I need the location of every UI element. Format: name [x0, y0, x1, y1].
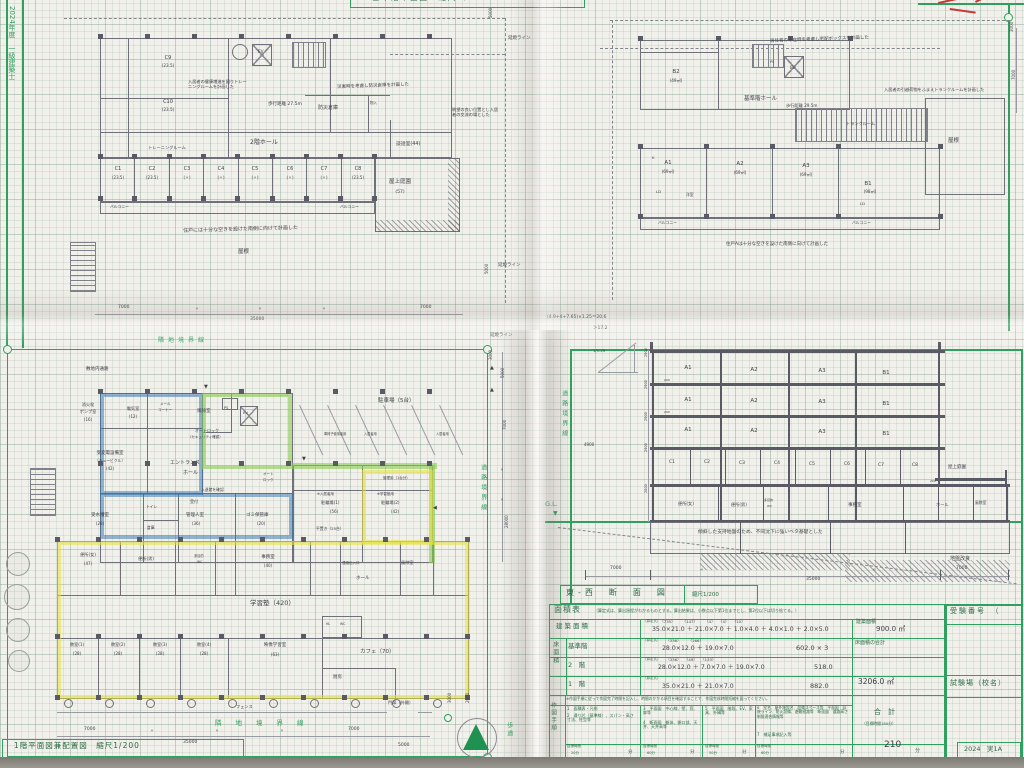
sec-dim-d2: 〃 — [872, 568, 876, 572]
unit-c3: C3 — [184, 167, 191, 173]
dim2f-d3: 〃 — [322, 307, 326, 311]
pencil-wall — [940, 570, 941, 580]
unit-a3-area: (69㎡) — [800, 173, 813, 178]
dim1f-d1: 〃 — [150, 729, 154, 733]
sec-wc-multi-2: WC — [767, 505, 772, 508]
plan1f-title-box-text: 1階平面図兼配置図 縮尺1/200 — [14, 742, 140, 750]
pencil-wall — [132, 154, 137, 159]
dim2f-35000: 35000 — [250, 317, 264, 322]
elec-room-area: (12) — [129, 415, 137, 419]
manager-room: 管理人室 — [186, 513, 204, 518]
pencil-wall — [424, 634, 429, 639]
note-walk-std: 歩行距離 29.5m — [786, 104, 817, 109]
red-handwriting-mark — [950, 8, 976, 14]
santei-4: （算定式） — [643, 677, 661, 681]
dim2f-d2: 〃 — [258, 307, 262, 311]
hall-std: 基準階ホール — [744, 96, 777, 102]
entrance-1: エントランス — [170, 461, 200, 467]
pencil-wall — [235, 154, 240, 159]
pencil-wall — [716, 36, 721, 41]
pencil-dimension-line — [634, 345, 635, 373]
unit-b1-area: (98㎡) — [864, 190, 877, 195]
pencil-wall — [838, 148, 839, 218]
pencil-wall — [650, 570, 651, 580]
sec-5f-a3: A3 — [818, 368, 825, 374]
printed-green-line — [549, 619, 945, 620]
pencil-wall — [235, 196, 240, 201]
wc-multi-1: 多目的 — [194, 555, 204, 559]
pencil-wall — [900, 450, 901, 484]
photo-of-exam-drawing: 2024年度 一級建築士基準階平面図 縮尺1/2001階平面図兼配置図 縮尺1/… — [0, 0, 1024, 768]
roof-label-2f: 屋根 — [238, 249, 249, 255]
time3-min: 分 — [742, 750, 747, 755]
time4-min: 分 — [840, 750, 845, 755]
printed-green-line — [945, 624, 1022, 625]
kitchen: 厨房 — [333, 675, 342, 680]
sec-3f-b1: B1 — [882, 431, 889, 437]
substation-area: (42) — [106, 467, 114, 471]
note-trunk: 入居者の引越荷物をふまえトランクルームを計画した — [884, 88, 999, 93]
printed-green-line — [852, 619, 853, 762]
pencil-wall — [333, 34, 338, 39]
pencil-wall — [772, 148, 773, 218]
pencil-wall — [286, 389, 291, 394]
pencil-wall-outline — [100, 202, 375, 214]
pencil-wall — [427, 389, 432, 394]
chain-d1: 〃 — [500, 468, 504, 472]
pencil-wall — [424, 537, 429, 542]
pencil-wall — [167, 154, 172, 159]
pencil-wall — [830, 450, 831, 484]
pencil-wall — [652, 350, 654, 522]
pencil-wall — [260, 695, 265, 700]
pencil-wall — [128, 98, 228, 99]
windbreak-1f: 風除室 — [197, 409, 211, 414]
pencil-wall — [903, 486, 904, 522]
unit-c3-area: (〃) — [183, 176, 190, 180]
class3: 教室(3) — [153, 643, 167, 648]
pencil-wall — [96, 537, 101, 542]
unit-c6: C6 — [287, 167, 294, 173]
pencil-wall — [718, 40, 719, 110]
time2-min: 分 — [690, 750, 695, 755]
sec-3f-a3: A3 — [818, 429, 825, 435]
windbreak-1f-2: 風除室 — [401, 561, 414, 566]
pencil-dimension-line — [502, 352, 503, 562]
pencil-dashed-line — [612, 20, 613, 300]
pencil-circle — [310, 699, 319, 708]
dim2f-7000-r: 7000 — [420, 305, 431, 310]
printed-green-line — [945, 604, 1022, 606]
pencil-wall — [96, 634, 101, 639]
balcony-2f-left: バルコニー — [110, 205, 129, 209]
arrow-ent-1: ▼ — [204, 385, 208, 391]
printed-green-line — [549, 657, 945, 658]
pencil-wall — [98, 34, 103, 39]
stall-resident-2: 入居者用 — [436, 433, 449, 437]
wc-women-area: (47) — [84, 562, 92, 566]
bike1-use: ※入居者用 — [317, 493, 334, 497]
pencil-wall — [905, 522, 906, 554]
pencil-wall — [100, 132, 452, 133]
note-east-2f: 眺望の良い位置とし入居者の交流の場とした — [452, 108, 502, 117]
unit-c7: C7 — [321, 167, 328, 173]
result-head-building: 建築面積 — [856, 620, 876, 626]
pencil-wall — [638, 36, 643, 41]
ensho-line-1: 延焼ライン — [498, 263, 521, 268]
sec-5f-a2: A2 — [750, 367, 757, 373]
dim1f-2000v: 2000 — [466, 693, 470, 703]
stairs-icon — [292, 42, 326, 68]
sec-ground-improve: 地盤改良 — [950, 557, 970, 563]
formula-kijunkai: 28.0×12.0 ＋ 19.0×7.0 — [662, 646, 734, 653]
result-kijunkai: 602.0 × 3 — [796, 645, 828, 652]
chain-5000: 5000 — [501, 368, 505, 378]
result-2f: 518.0 — [814, 664, 833, 671]
sec-fh-4: 2900 — [645, 443, 649, 452]
ev-1f: EV — [243, 411, 248, 415]
room-training: トレーニングルーム — [148, 146, 186, 151]
santei-3: （算定式） — [643, 658, 661, 662]
sec-3f-a1: A1 — [684, 427, 691, 433]
sec-fh-5: 2800 — [645, 484, 649, 493]
result-total: 3206.0 ㎡ — [858, 678, 894, 686]
tejun-col1b: 2 通り芯（基準線）、スパン・高さ寸法、柱型等 — [567, 714, 637, 723]
dim1f-5000: 5000 — [398, 743, 409, 748]
pencil-wall — [333, 389, 338, 394]
sec-c1: C1 — [669, 460, 675, 465]
substation-2: （キュービクル） — [95, 459, 125, 463]
gate: 門扉（外開） — [388, 701, 413, 706]
time1b: 20分 — [571, 752, 579, 756]
pencil-circle — [105, 699, 114, 708]
sec-4f-b1: B1 — [882, 401, 889, 407]
ev-std: EV — [790, 66, 795, 70]
dim2f-7000-l: 7000 — [118, 305, 129, 310]
room-c10-area: (23.5) — [162, 108, 175, 113]
pencil-wall — [239, 34, 244, 39]
time2a: 目標時間 — [643, 745, 657, 749]
sec-wc-multi-1: 多目的 — [764, 499, 773, 502]
hall-1f: ホール — [356, 576, 370, 581]
santei-1: （算定式） — [643, 620, 661, 624]
dim-std-7000: 7000 — [1012, 70, 1016, 80]
pencil-wall — [390, 120, 391, 158]
north-arrow-icon — [457, 718, 497, 758]
dim1f-3000v: 3000 — [448, 693, 452, 703]
pencil-wall — [638, 144, 643, 149]
pencil-dimension-line — [57, 712, 387, 713]
pencil-wall — [650, 383, 945, 386]
sec-road-calc-1: (4.9+4+7.65)×1.25＝20.6 — [547, 315, 606, 320]
sec-office: 事務室 — [848, 503, 862, 508]
pencil-wall — [132, 196, 137, 201]
autolock-1-note: （セキュリティ確認） — [188, 436, 223, 440]
pencil-wall — [706, 148, 707, 218]
unit-c6-area: (〃) — [286, 176, 293, 180]
road-boundary-section: 道路境界線 — [560, 390, 567, 440]
pencil-wall — [55, 537, 60, 542]
printed-green-line — [945, 604, 947, 762]
tejun-col4b: 7 補足事項記入等 — [757, 733, 792, 737]
printed-green-line — [945, 675, 1022, 676]
unit-a1-area: (69㎡) — [662, 170, 675, 175]
row-1f: 1 階 — [568, 681, 585, 688]
pencil-wall — [368, 95, 369, 132]
pencil-wall — [338, 154, 343, 159]
pencil-wall — [260, 634, 265, 639]
sec-c5: C5 — [809, 462, 815, 467]
stairs-icon — [30, 468, 56, 516]
wc-multi-2: WC — [197, 561, 202, 565]
dim1f-d2: 〃 — [215, 729, 219, 733]
arrow-ent-3: ◀ — [433, 506, 437, 512]
pencil-wall — [795, 450, 796, 484]
sidewalk-label: 歩道 — [505, 722, 512, 738]
pencil-wall — [640, 52, 718, 53]
pencil-wall — [260, 537, 265, 542]
reception: 受付 — [190, 500, 198, 504]
pencil-wall — [342, 634, 347, 639]
pencil-wall — [836, 214, 841, 219]
pencil-wall — [763, 486, 764, 522]
pencil-circle — [351, 699, 360, 708]
tejun-total-written: 210 — [884, 740, 901, 750]
sec-hall: ホール — [936, 503, 949, 508]
pencil-wall — [219, 634, 224, 639]
pencil-dimension-line — [95, 314, 463, 315]
hatch-fill — [375, 220, 460, 232]
office-1f-area: (40) — [264, 564, 272, 568]
tejun-note: ※作図手順に従って作図完了時間を記入し、時間のかかる項目を確認することで、作図完… — [566, 697, 770, 701]
unit-c4-area: (〃) — [217, 176, 224, 180]
pencil-wall — [855, 350, 857, 522]
note-south-2f: 住戸には十分な空きを設けた南側に向けて計画した — [183, 226, 298, 235]
wc-men: 便所(男) — [138, 557, 154, 562]
pencil-wall — [304, 196, 309, 201]
sec-wc-w: 便所(女) — [678, 502, 694, 507]
tejun-total: 合 計 — [874, 709, 895, 717]
sec-wc-m: 便所(男) — [731, 503, 747, 508]
row-building-area: 建築面積 — [556, 623, 590, 630]
sec-200-a: 200 — [664, 379, 670, 382]
printed-green-line — [565, 695, 566, 762]
pencil-wall — [301, 537, 306, 542]
fence: フェンス — [236, 705, 253, 710]
exam-code: 2024 実1A — [964, 746, 1002, 753]
room-c9-area: (23.5) — [162, 64, 175, 69]
pencil-wall — [270, 154, 275, 159]
dim-std-3000: 3000 — [1010, 22, 1014, 32]
sec-5f-a1: A1 — [684, 365, 691, 371]
area-table-title: 面積表 — [554, 606, 581, 615]
stall-wheelchair: 車椅子使用者用 — [324, 433, 346, 437]
pencil-circle — [269, 699, 278, 708]
pencil-wall — [98, 196, 103, 201]
sec-slope-ratio: 1/1.25 — [593, 349, 605, 353]
tejun-col1a: 1 面積表・凡例 — [567, 707, 598, 711]
mail-corner-1: メール — [160, 403, 171, 407]
pencil-wall — [427, 461, 432, 466]
time4b: 60分 — [761, 752, 769, 756]
pencil-wall — [465, 634, 470, 639]
desk-background — [0, 757, 1024, 768]
pencil-wall — [137, 634, 142, 639]
water-tank: 受水槽室 — [91, 513, 109, 518]
examinee-number-label: 受験番号 （ — [950, 608, 1001, 616]
sec-roof-garden: 屋上庭園 — [948, 465, 966, 470]
pencil-wall — [585, 570, 586, 580]
unit-c5: C5 — [252, 167, 259, 173]
pencil-wall — [178, 634, 183, 639]
sec-4f-a3: A3 — [818, 399, 825, 405]
pencil-line — [598, 342, 636, 372]
pencil-wall — [228, 38, 229, 158]
pencil-circle — [433, 699, 442, 708]
unit-b1: B1 — [864, 181, 871, 187]
north-triangle — [463, 724, 489, 750]
pencil-dimension-line — [585, 576, 1010, 577]
pencil-wall — [286, 34, 291, 39]
renraku: 連絡出入口 — [342, 562, 360, 566]
time2b: 60分 — [647, 752, 655, 756]
pencil-wall — [137, 537, 142, 542]
note-south-std: 住戸Aは十分な空きを設けた南側に向けて計画した — [726, 242, 846, 247]
pencil-wall — [137, 695, 142, 700]
tree-icon — [6, 552, 30, 576]
unit-a1-k: K — [652, 156, 655, 160]
balcony-2f-right: バルコニー — [340, 205, 359, 209]
floor-area-vertical: 床面積 — [551, 641, 558, 665]
chain-d2: 〃 — [500, 498, 504, 502]
printed-green-line — [945, 697, 1022, 698]
pencil-wall — [192, 389, 197, 394]
storage-small: 倉庫 — [147, 526, 155, 530]
class4: 教室(4) — [197, 643, 211, 648]
pencil-wall — [201, 154, 206, 159]
printed-green-line — [570, 349, 572, 605]
printed-green-line — [702, 705, 703, 762]
pencil-wall — [938, 342, 941, 352]
pencil-wall — [304, 154, 309, 159]
pencil-wall — [836, 144, 841, 149]
sec-dim-d1: 〃 — [700, 568, 704, 572]
chain-7000: 7000 — [503, 420, 507, 430]
pencil-wall — [770, 214, 775, 219]
pencil-wall — [690, 450, 691, 484]
room-b2-area: (49㎡) — [670, 79, 683, 84]
room-b2: B2 — [672, 69, 679, 75]
time1-min: 分 — [628, 750, 633, 755]
santei-2: （算定式） — [643, 639, 661, 643]
top-title-box-text: 基準階平面図 縮尺1/200 — [372, 0, 489, 2]
sec-fh-2: 2900 — [645, 380, 649, 389]
time4a: 目標時間 — [757, 745, 771, 749]
chain-28000: 28000 — [505, 515, 509, 528]
pencil-wall — [865, 450, 866, 484]
pencil-wall — [938, 214, 943, 219]
room-c9: C9 — [165, 56, 172, 62]
row-kijunkai: 基準階 — [568, 643, 588, 650]
tejun-total-sub: （目標時間180分） — [862, 722, 896, 726]
sec-foundation-note: 傾斜した支持地盤のため、不同沈下に強いベタ基礎とした — [698, 530, 823, 535]
room-c10: C10 — [163, 100, 173, 106]
sec-rg-200: 200 — [930, 480, 936, 483]
note-walk-2f: 歩行距離 27.5m — [268, 102, 302, 107]
wc-small: WC — [340, 623, 345, 627]
pencil-wall — [98, 389, 103, 394]
sec-4900: 4900 — [584, 443, 594, 447]
pencil-dashed-line — [64, 18, 505, 19]
sec-c2: C2 — [704, 460, 710, 465]
juku: 学習塾（420） — [250, 600, 295, 607]
section-title: 東-西 断 面 図 — [566, 589, 669, 598]
ensho-line-2: 延焼ライン — [490, 333, 513, 338]
registration-circle — [444, 714, 452, 722]
pencil-wall — [145, 34, 150, 39]
yellow-highlight — [362, 470, 433, 544]
pencil-wall — [301, 634, 306, 639]
sec-road-calc-2: ＞17.2 — [593, 326, 608, 331]
dim1f-d3: 〃 — [280, 729, 284, 733]
pencil-wall — [788, 486, 789, 522]
time3a: 目標時間 — [705, 745, 719, 749]
row-2f: 2 階 — [568, 662, 585, 669]
pencil-wall — [938, 144, 943, 149]
pencil-wall — [342, 537, 347, 542]
pump-room-2: ポンプ室 — [80, 410, 97, 415]
pencil-wall — [98, 154, 103, 159]
manager-room-area: (36) — [192, 522, 200, 526]
pencil-wall-outline — [640, 148, 940, 218]
class2: 教室(2) — [111, 643, 125, 648]
pencil-wall — [704, 214, 709, 219]
pencil-dashed-line — [505, 18, 506, 303]
dim1f-7000-l: 7000 — [84, 727, 95, 732]
dim1f-35000: 35000 — [183, 740, 197, 745]
sec-4f-a2: A2 — [750, 398, 757, 404]
printed-green-line — [1008, 3, 1010, 331]
av-room-area: (63) — [271, 653, 279, 657]
pencil-dimension-line — [57, 736, 430, 737]
green-highlight — [292, 463, 437, 469]
arrow-walk-2: ▲ — [490, 388, 494, 394]
pencil-wall — [973, 486, 974, 522]
pencil-wall — [286, 461, 291, 466]
pencil-wall-outline — [640, 218, 940, 230]
bike2: 駐輪場(2) — [381, 501, 400, 506]
roof-label-std: 屋根 — [948, 138, 959, 144]
pencil-wall — [1006, 484, 1008, 522]
elevator-icon — [252, 44, 272, 66]
note-reception: 入退館を確認 — [201, 488, 224, 492]
unit-a2: A2 — [736, 161, 743, 167]
pencil-dimension-line — [648, 350, 649, 522]
pencil-wall — [938, 350, 940, 486]
cafe: カフェ（70） — [360, 649, 395, 655]
av-room: 映像学習室 — [264, 643, 287, 648]
pencil-wall — [219, 695, 224, 700]
pencil-wall — [383, 537, 388, 542]
pencil-dashed-line — [610, 20, 1010, 21]
sec-4f-a1: A1 — [684, 397, 691, 403]
pencil-wall — [178, 695, 183, 700]
sec-fh-3: 2900 — [645, 412, 649, 421]
pencil-wall — [380, 34, 385, 39]
garbage-room-area: (20) — [257, 522, 265, 526]
tejun-col4a: 6 室名、屋外施設名、設備スペース等 平面図 延焼ライン、防火設備、避難経路等 … — [757, 706, 849, 719]
pencil-wall — [333, 461, 338, 466]
